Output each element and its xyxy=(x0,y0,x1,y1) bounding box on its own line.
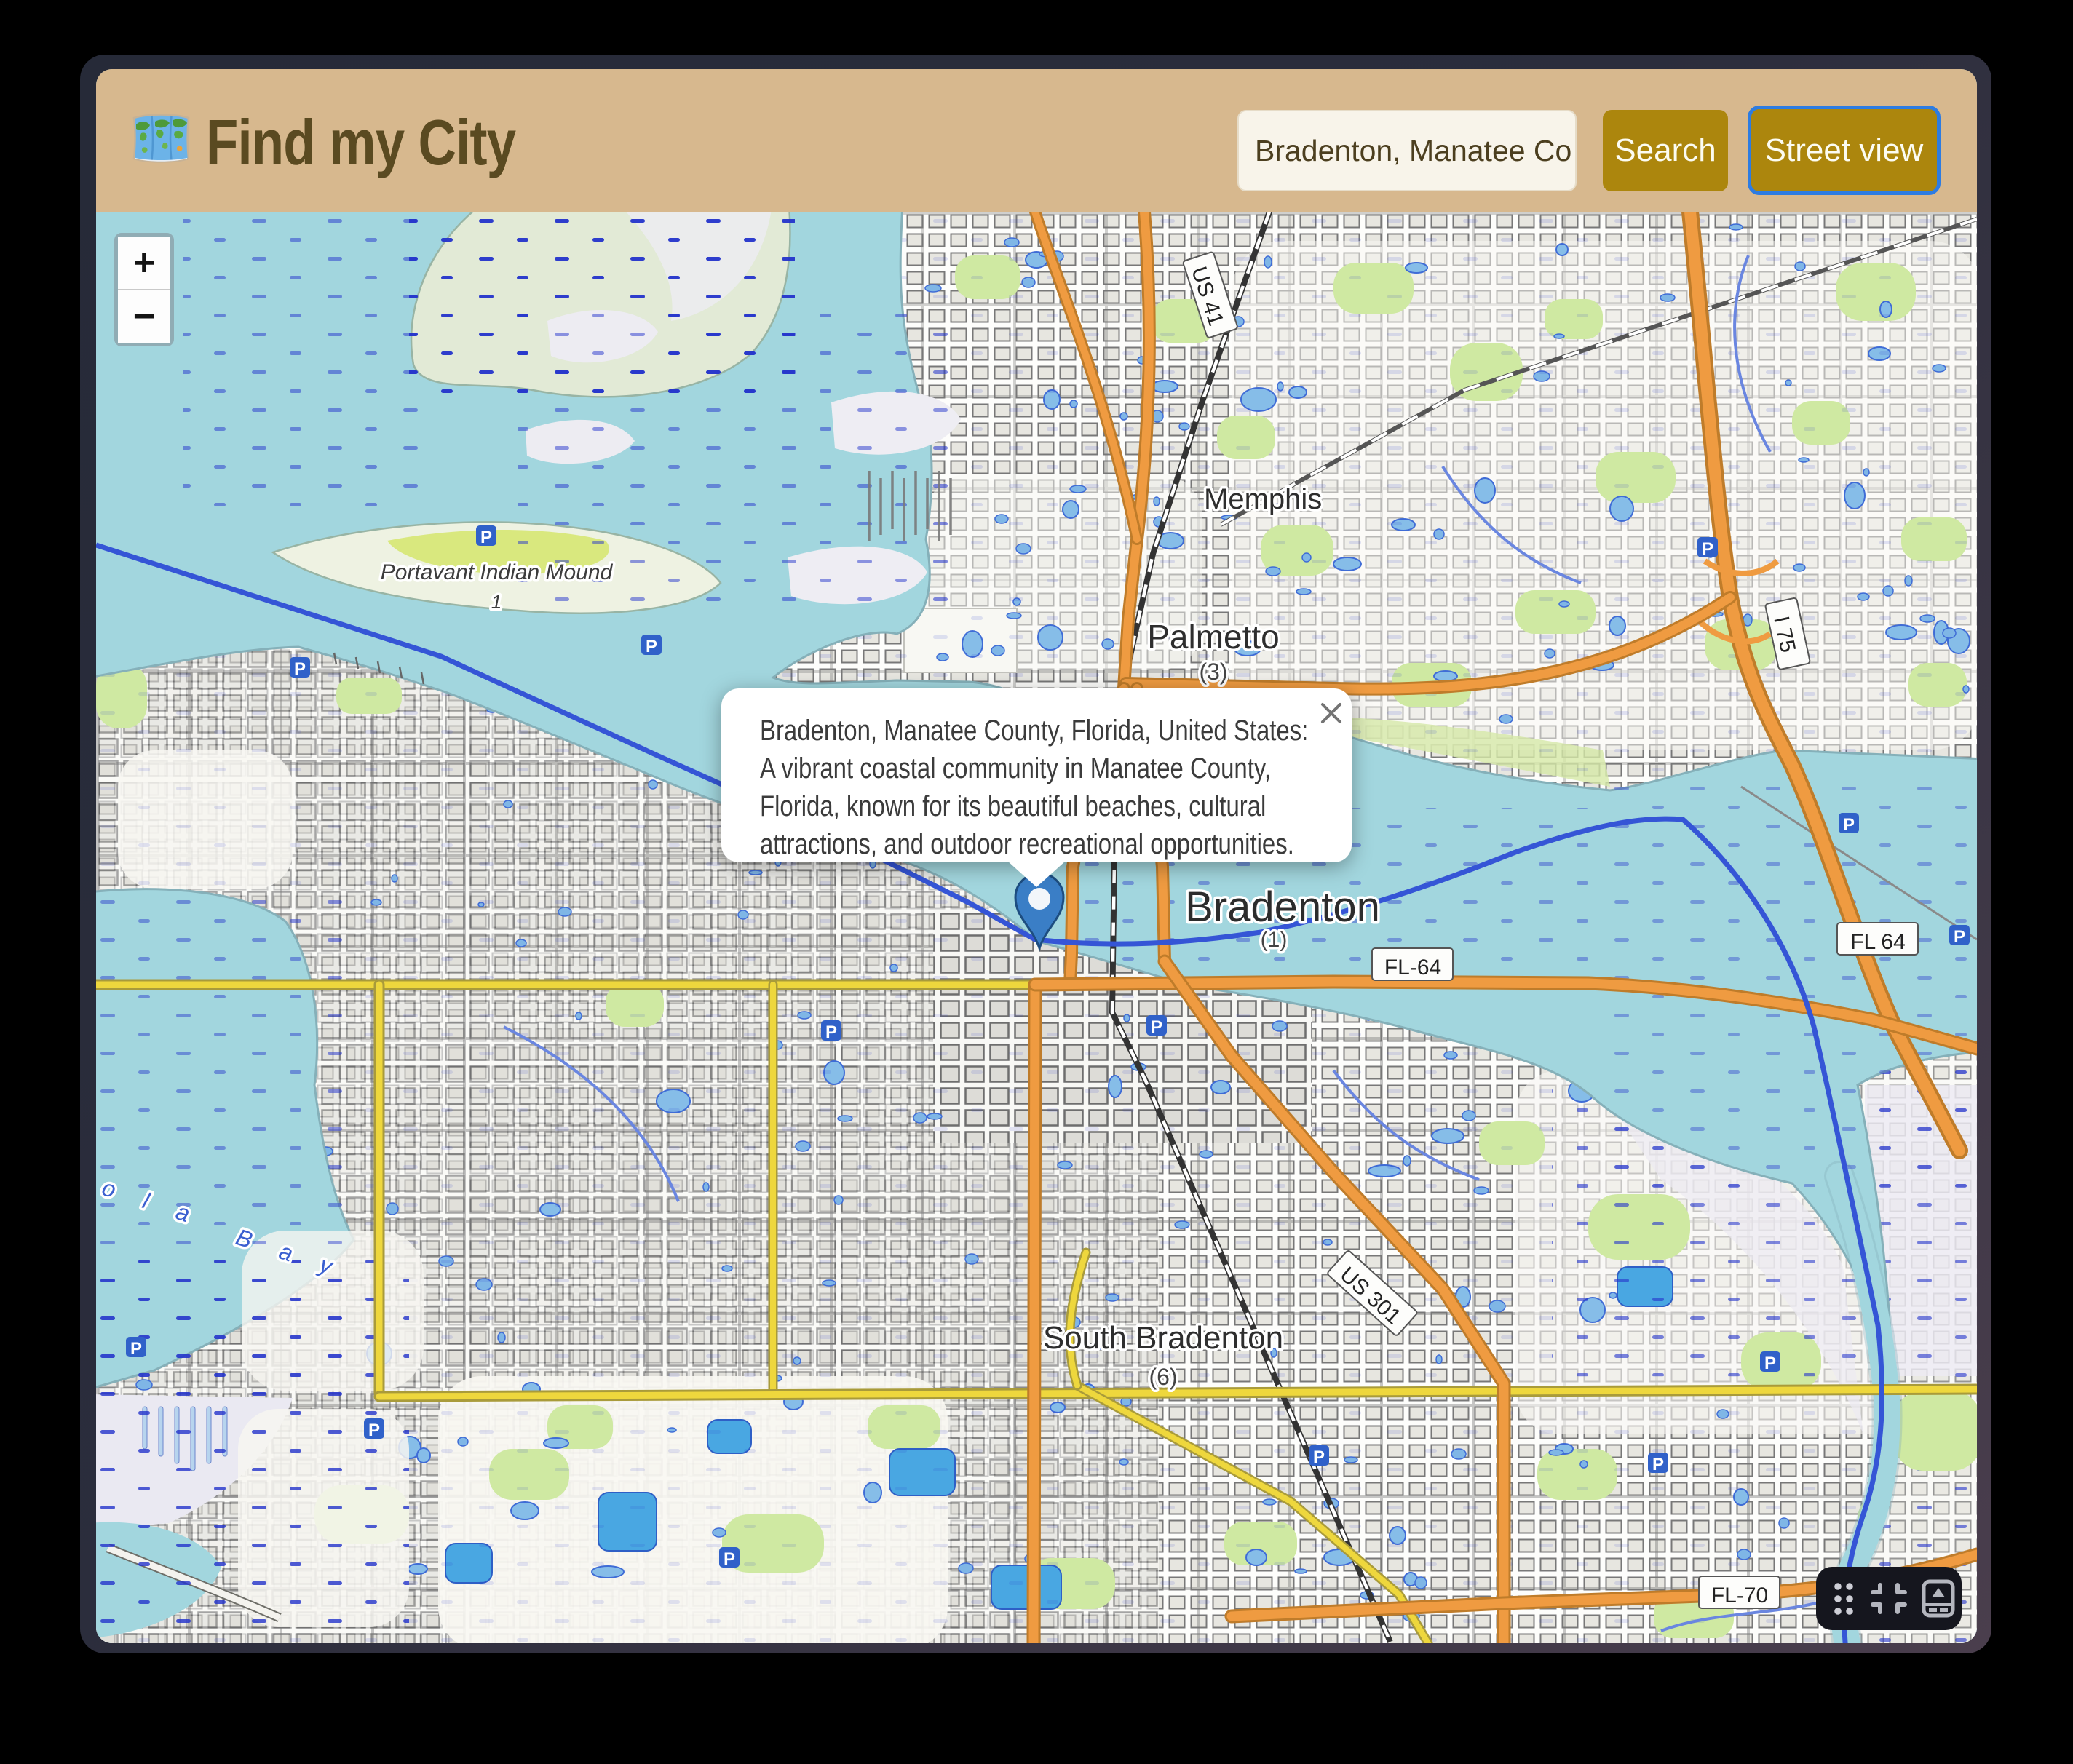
svg-text:P: P xyxy=(724,1549,735,1569)
svg-text:P: P xyxy=(646,637,657,656)
svg-text:P: P xyxy=(130,1339,142,1359)
svg-text:FL-70: FL-70 xyxy=(1711,1584,1768,1608)
svg-text:Memphis: Memphis xyxy=(1204,483,1322,515)
svg-text:P: P xyxy=(1954,927,1965,947)
svg-text:P: P xyxy=(480,528,492,547)
svg-text:P: P xyxy=(1652,1455,1664,1474)
svg-text:FL-64: FL-64 xyxy=(1384,955,1441,980)
svg-text:(3): (3) xyxy=(1199,659,1227,685)
svg-text:Bradenton: Bradenton xyxy=(1185,883,1380,931)
svg-text:P: P xyxy=(1313,1447,1325,1467)
svg-text:1: 1 xyxy=(491,591,502,613)
svg-text:FL 64: FL 64 xyxy=(1850,930,1906,954)
svg-text:P: P xyxy=(1764,1354,1776,1373)
svg-text:(1): (1) xyxy=(1261,928,1288,952)
svg-text:P: P xyxy=(1843,815,1855,835)
svg-text:(6): (6) xyxy=(1149,1364,1177,1390)
svg-text:P: P xyxy=(368,1421,380,1440)
svg-text:Portavant Indian Mound: Portavant Indian Mound xyxy=(381,560,614,584)
svg-text:Palmetto: Palmetto xyxy=(1147,618,1280,656)
svg-text:P: P xyxy=(1151,1017,1162,1037)
svg-text:P: P xyxy=(1702,539,1713,559)
svg-text:P: P xyxy=(825,1022,837,1042)
svg-text:P: P xyxy=(294,659,306,679)
svg-text:South Bradenton: South Bradenton xyxy=(1043,1320,1283,1356)
